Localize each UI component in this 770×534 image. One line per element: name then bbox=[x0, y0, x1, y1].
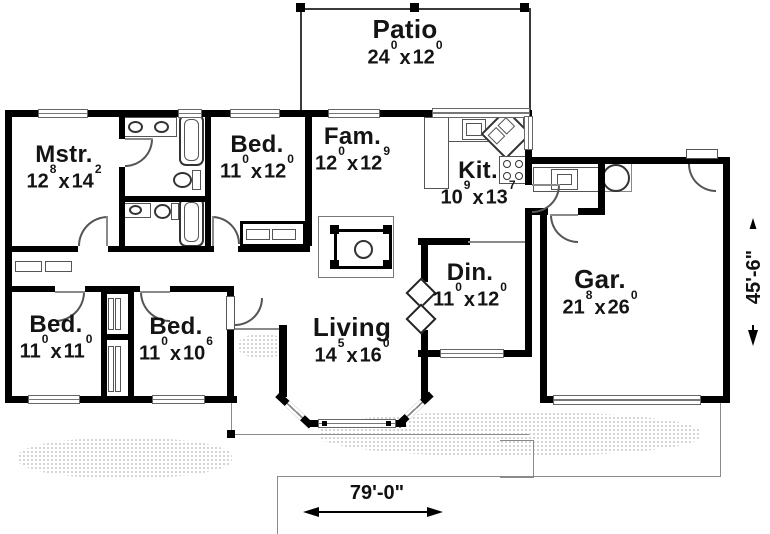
arrow-right-icon bbox=[427, 507, 443, 517]
exterior-wall bbox=[279, 325, 287, 397]
sink-icon bbox=[154, 121, 169, 133]
patio-wall bbox=[529, 8, 531, 110]
room-name: Patio bbox=[340, 16, 470, 43]
window-icon bbox=[285, 401, 305, 421]
room-dimensions: 109x137 bbox=[428, 186, 528, 209]
door-leaf bbox=[55, 291, 85, 293]
room-dimensions: 110x110 bbox=[10, 340, 102, 363]
exterior-wall bbox=[723, 157, 730, 403]
interior-wall bbox=[238, 246, 310, 252]
door-swing-icon bbox=[688, 164, 716, 192]
bathtub-icon bbox=[179, 114, 204, 166]
interior-wall bbox=[119, 117, 125, 139]
height-dimension-label: 45'-6" bbox=[741, 229, 767, 325]
patio-post bbox=[520, 3, 529, 12]
driveway-line bbox=[277, 477, 278, 534]
window-icon bbox=[230, 109, 280, 118]
step-line bbox=[533, 440, 534, 478]
toilet-icon bbox=[192, 170, 201, 190]
window-icon bbox=[28, 395, 80, 404]
room-dimensions: 240x120 bbox=[340, 46, 470, 69]
room-label-bed-top: Bed. 110x120 bbox=[208, 132, 306, 183]
room-label-dining: Din. 110x120 bbox=[415, 260, 525, 311]
toilet-icon bbox=[154, 204, 171, 219]
porch-line bbox=[231, 434, 529, 435]
bay-window-icon bbox=[318, 419, 396, 428]
door-leaf bbox=[532, 184, 560, 186]
dimension-arrow bbox=[317, 511, 429, 513]
sliding-door-icon bbox=[432, 108, 530, 118]
sink-icon bbox=[128, 121, 143, 133]
driveway-line bbox=[277, 476, 721, 477]
room-dimensions: 110x120 bbox=[415, 288, 525, 311]
door-swing-icon bbox=[212, 216, 240, 244]
interior-wall bbox=[170, 286, 234, 292]
fireplace-icon bbox=[383, 225, 392, 234]
toilet-icon bbox=[173, 172, 192, 188]
closet-bifold-icon bbox=[115, 298, 121, 330]
width-dimension-label: 79'-0" bbox=[307, 482, 447, 505]
garage-door-icon bbox=[553, 395, 701, 405]
closet-bifold-icon bbox=[15, 261, 42, 272]
interior-wall bbox=[108, 246, 205, 252]
room-label-kitchen: Kit. 109x137 bbox=[428, 158, 528, 209]
closet-bifold-icon bbox=[115, 346, 121, 392]
window-icon bbox=[524, 116, 533, 150]
patio-post bbox=[410, 3, 419, 12]
wardrobe-icon bbox=[272, 229, 296, 240]
door-leaf bbox=[550, 214, 578, 216]
door-swing-icon bbox=[125, 139, 153, 167]
interior-wall bbox=[227, 328, 234, 396]
water-heater-icon bbox=[602, 164, 630, 192]
interior-wall bbox=[119, 167, 125, 246]
room-dimensions: 218x260 bbox=[535, 296, 665, 319]
porch-header-line bbox=[234, 328, 280, 330]
fireplace-icon bbox=[330, 225, 339, 234]
exterior-wall bbox=[525, 215, 532, 357]
wardrobe-icon bbox=[246, 229, 270, 240]
bay-window-mullion bbox=[386, 421, 391, 426]
step-line bbox=[500, 477, 534, 478]
room-name: Gar. bbox=[535, 266, 665, 293]
window-icon bbox=[328, 109, 380, 118]
arrow-left-icon bbox=[303, 507, 319, 517]
room-name: Din. bbox=[415, 260, 525, 285]
room-label-patio: Patio 240x120 bbox=[340, 16, 470, 69]
room-dimensions: 128x142 bbox=[10, 170, 118, 193]
fireplace-icon bbox=[383, 260, 392, 269]
arrow-down-icon bbox=[748, 330, 758, 346]
door-leaf bbox=[125, 138, 153, 140]
window-icon bbox=[178, 109, 202, 118]
fireplace-icon bbox=[354, 240, 373, 259]
floor-plan-canvas: Patio 240x120 Mstr. 128x142 Bed. 110x120… bbox=[0, 0, 770, 534]
room-label-living: Living 145x160 bbox=[292, 314, 412, 367]
front-door-swing-icon bbox=[235, 298, 263, 326]
room-dimensions: 110x106 bbox=[128, 342, 224, 365]
room-dimensions: 110x120 bbox=[208, 160, 306, 183]
interior-wall bbox=[421, 330, 428, 400]
room-label-master: Mstr. 128x142 bbox=[10, 142, 118, 193]
room-label-bed-left: Bed. 110x110 bbox=[10, 312, 102, 363]
driveway-line bbox=[720, 403, 721, 477]
closet-wall bbox=[101, 288, 134, 294]
front-door-leaf bbox=[226, 296, 235, 330]
window-icon bbox=[152, 395, 205, 404]
door-leaf bbox=[212, 216, 214, 246]
window-icon bbox=[440, 349, 504, 358]
fireplace-icon bbox=[330, 260, 339, 269]
patio-post bbox=[296, 3, 305, 12]
door-swing-icon bbox=[532, 185, 560, 213]
room-label-family: Fam. 120x129 bbox=[305, 124, 400, 175]
room-dimensions: 120x129 bbox=[305, 152, 400, 175]
cased-opening bbox=[468, 241, 525, 243]
room-label-garage: Gar. 218x260 bbox=[535, 266, 665, 319]
step-line bbox=[500, 440, 534, 441]
door-leaf bbox=[106, 216, 108, 246]
room-dimensions: 145x160 bbox=[292, 344, 412, 367]
closet-bifold-icon bbox=[108, 298, 114, 330]
door-swing-icon bbox=[550, 215, 578, 243]
interior-wall bbox=[12, 246, 78, 252]
bathtub-icon bbox=[179, 197, 204, 247]
closet-bifold-icon bbox=[45, 261, 72, 272]
toilet-icon bbox=[171, 203, 179, 220]
closet-bifold-icon bbox=[108, 346, 114, 392]
interior-wall bbox=[205, 246, 214, 252]
door-leaf bbox=[686, 149, 718, 159]
porch-post bbox=[227, 430, 235, 438]
interior-wall bbox=[12, 286, 55, 292]
door-leaf bbox=[140, 291, 170, 293]
door-swing-icon bbox=[78, 216, 108, 246]
room-label-bed-mid: Bed. 110x106 bbox=[128, 314, 224, 365]
interior-wall bbox=[119, 196, 205, 202]
interior-wall bbox=[578, 208, 605, 215]
stipple-texture bbox=[18, 438, 232, 478]
sink-icon bbox=[129, 205, 142, 215]
window-icon bbox=[38, 109, 88, 118]
patio-wall bbox=[300, 8, 302, 110]
room-name: Living bbox=[292, 314, 412, 341]
bay-window-mullion bbox=[322, 421, 327, 426]
